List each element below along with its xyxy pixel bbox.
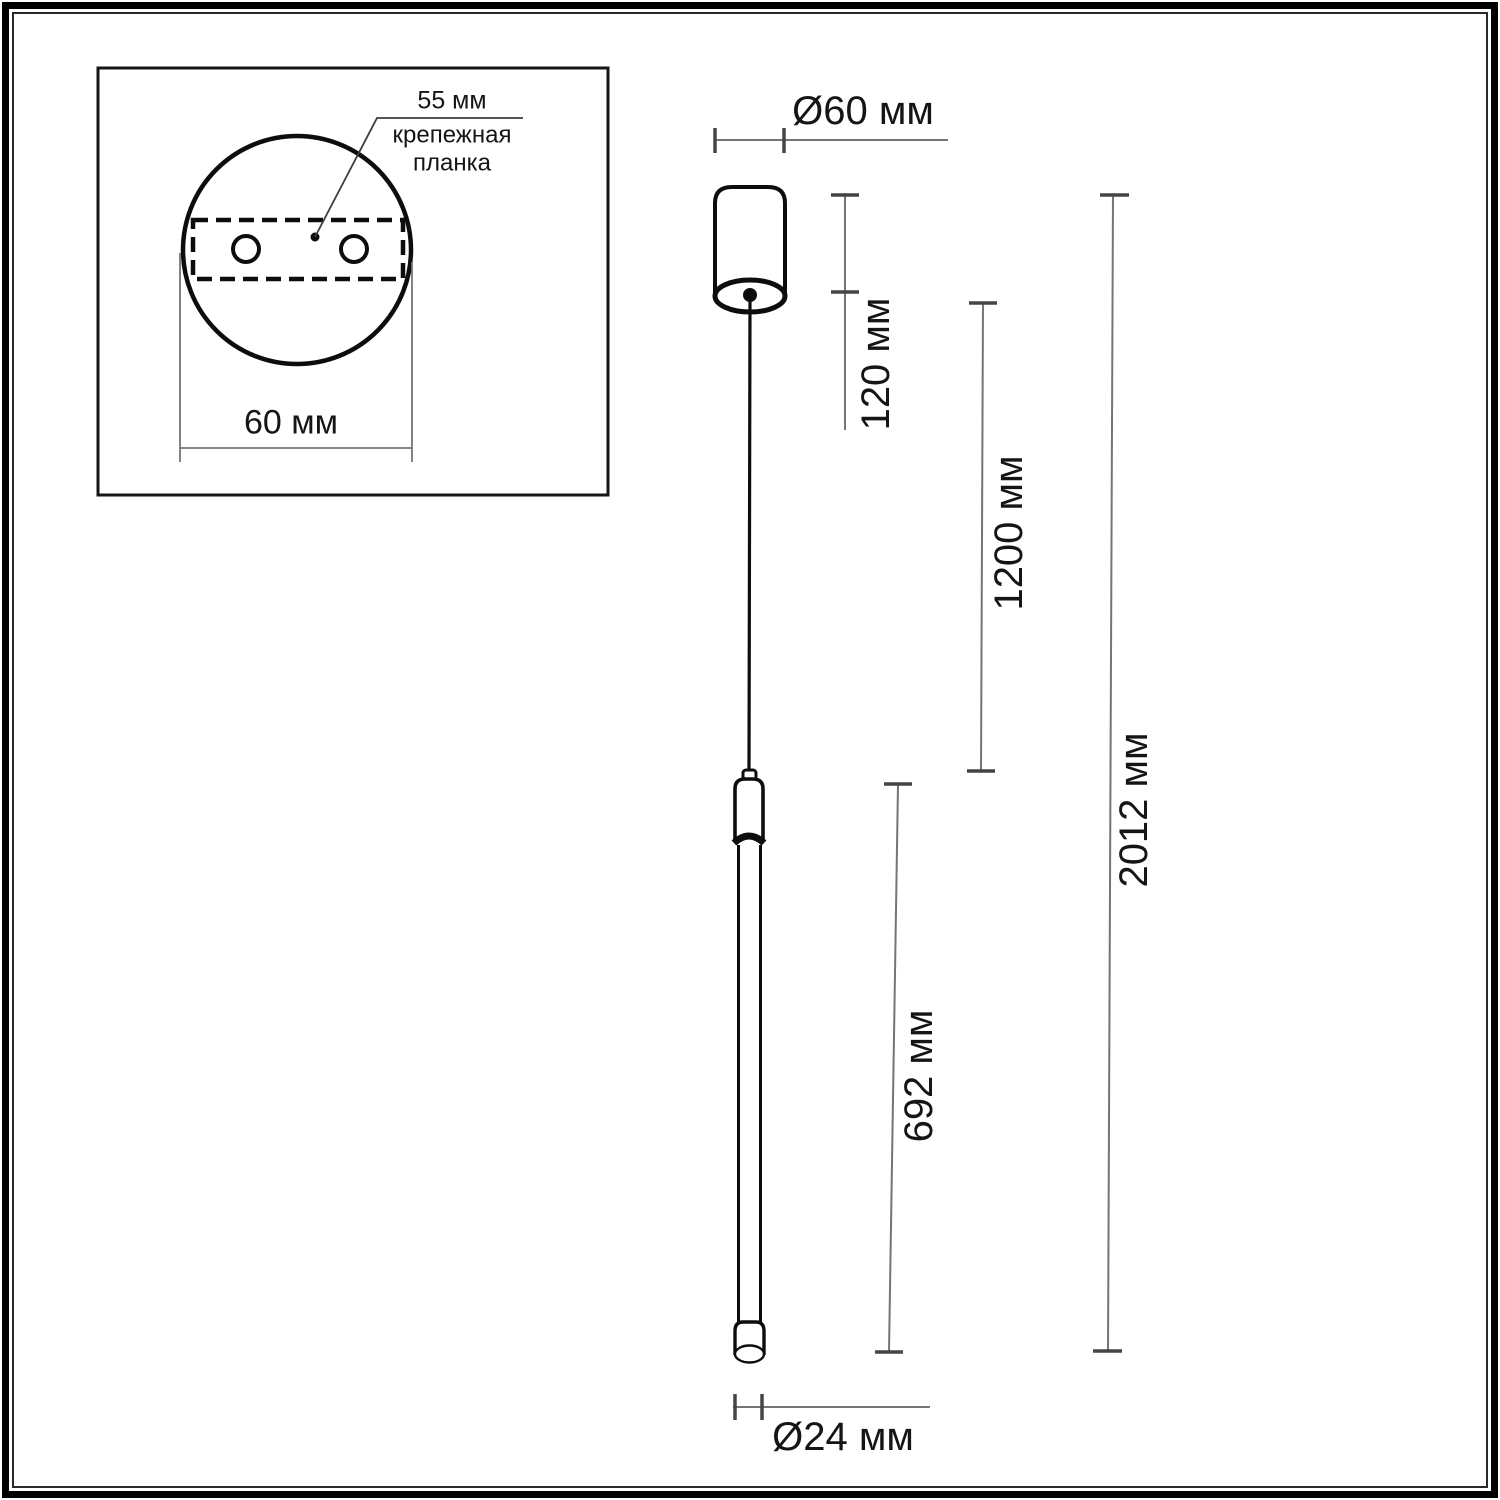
dim-label-canopy-height: 120 мм <box>853 298 899 431</box>
dimension-ticks <box>715 128 1129 1420</box>
dimension-lines <box>715 140 1113 1407</box>
dim-label-total-height: 2012 мм <box>1111 732 1157 887</box>
dim-line-suspension <box>981 302 983 772</box>
lamp-canopy <box>715 187 785 312</box>
inset-plate-width-label: 60 мм <box>244 403 338 442</box>
dim-label-canopy-diameter: Ø60 мм <box>792 88 934 134</box>
dim-label-tube-diameter: Ø24 мм <box>772 1414 914 1460</box>
suspension-cable <box>749 300 750 769</box>
end-cap-bottom-ellipse <box>735 1346 764 1363</box>
dim-label-tube-length: 692 мм <box>896 1010 942 1143</box>
lamp-body <box>734 770 764 1363</box>
cable-exit-dot <box>743 288 757 302</box>
dim-label-suspension-length: 1200 мм <box>986 455 1032 610</box>
inset-mount-plate-label: крепежная планка <box>365 121 540 176</box>
technical-drawing-canvas <box>0 0 1500 1500</box>
drawing-page: 55 мм крепежная планка 60 мм Ø60 мм 120 … <box>0 0 1500 1500</box>
inset-hole-spacing-label: 55 мм <box>417 87 486 116</box>
